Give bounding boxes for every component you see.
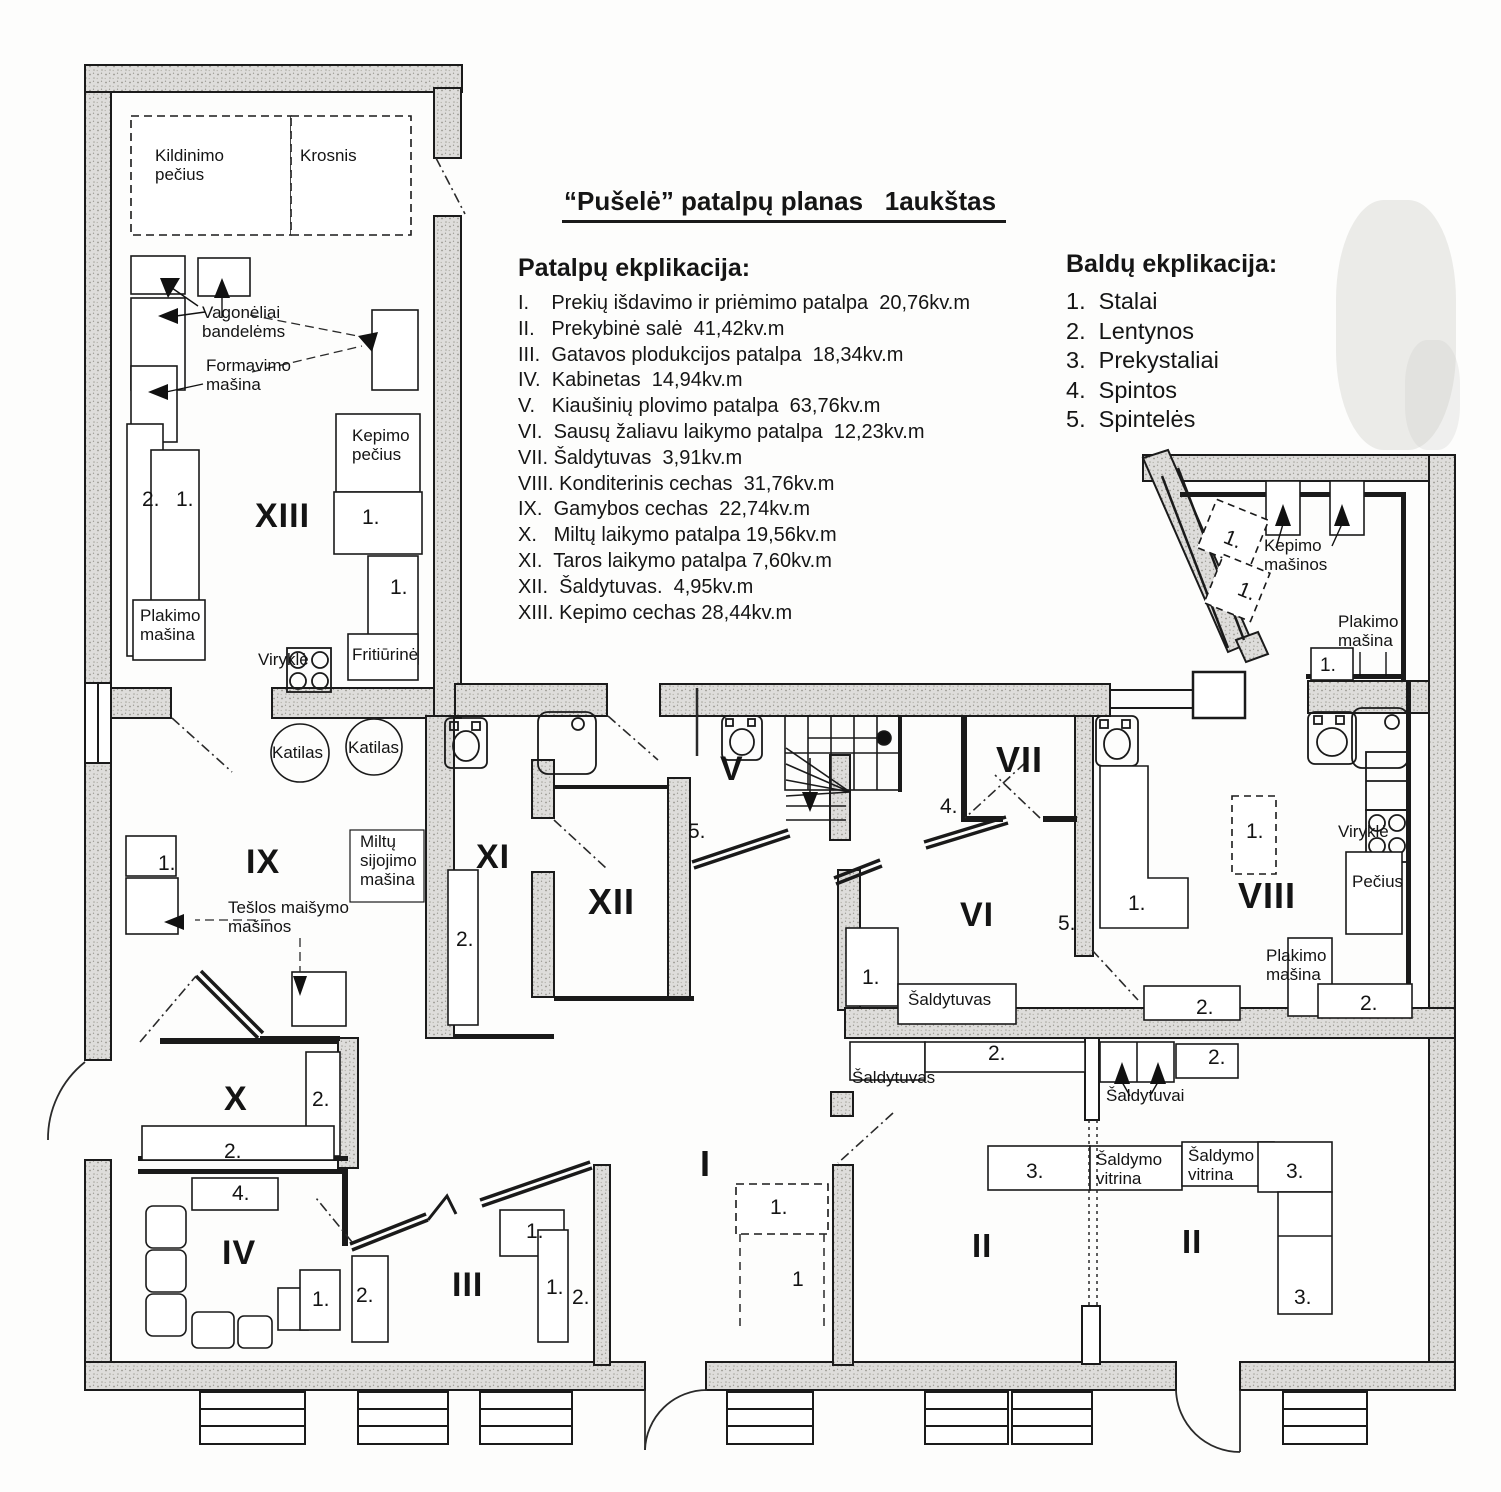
rooms-legend-item: V. Kiaušinių plovimo patalpa 63,76kv.m xyxy=(518,394,970,420)
rooms-legend-item: VIII. Konditerinis cechas 31,76kv.m xyxy=(518,472,970,498)
page-title: “Pušelė” patalpų planas 1aukštas xyxy=(562,186,1006,223)
furniture-number-label: 3. xyxy=(1286,1160,1304,1184)
lbl-saldytuvas-vi: Šaldytuvas xyxy=(908,990,991,1009)
wc-icon-3 xyxy=(1096,716,1138,766)
furniture-number-label: 2. xyxy=(456,928,474,952)
rooms-legend-item: II. Prekybinė salė 41,42kv.m xyxy=(518,317,970,343)
rooms-legend-item: XII. Šaldytuvas. 4,95kv.m xyxy=(518,575,970,601)
furniture-number-label: 2. xyxy=(142,488,160,512)
furniture-number-label: 2. xyxy=(1196,996,1214,1020)
lbl-kildinimo-pecius: Kildinimo pečius xyxy=(155,146,224,184)
rooms-legend-item: IV. Kabinetas 14,94kv.m xyxy=(518,368,970,394)
rooms-legend-heading: Patalpų ekplikacija: xyxy=(518,254,970,283)
furniture-number-label: 1. xyxy=(390,576,408,600)
rooms-legend-item: X. Miltų laikymo patalpa 19,56kv.m xyxy=(518,523,970,549)
lbl-saldymo-vitrina-1: Šaldymo vitrina xyxy=(1096,1150,1162,1188)
furniture-number-label: 2. xyxy=(1360,992,1378,1016)
lbl-formavimo-masina: Formavimo mašina xyxy=(206,356,291,394)
furniture-number-label: 2. xyxy=(1208,1046,1226,1070)
lbl-krosnis: Krosnis xyxy=(300,146,357,165)
furniture-number-label: 2. xyxy=(988,1042,1006,1066)
rooms-legend: Patalpų ekplikacija: I. Prekių išdavimo … xyxy=(518,254,970,626)
lbl-kepimo-pecius: Kepimo pečius xyxy=(352,426,410,464)
furniture-number-label: 3. xyxy=(1294,1286,1312,1310)
scan-artifact-2 xyxy=(1405,340,1460,450)
lbl-virykle-left: Viryklė xyxy=(258,650,309,669)
lbl-miltu-sijojimo: Miltų sijojimo mašina xyxy=(360,832,417,889)
furniture-legend-item: 1. Stalai xyxy=(1066,287,1277,317)
furniture-number-label: 1. xyxy=(526,1220,544,1244)
furniture-number-label: 1. xyxy=(1128,892,1146,916)
rooms-legend-item: VI. Sausų žaliavu laikymo patalpa 12,23k… xyxy=(518,420,970,446)
room-XIII: XIII xyxy=(255,497,310,535)
furniture-number-label: 1. xyxy=(1246,820,1264,844)
entry-landing xyxy=(1193,672,1245,718)
lbl-katilas-1: Katilas xyxy=(272,743,323,762)
furniture-number-label: 1. xyxy=(362,506,380,530)
lbl-saldymo-vitrina-2: Šaldymo vitrina xyxy=(1188,1146,1254,1184)
lbl-plakimo-masina-rt: Plakimo mašina xyxy=(1338,612,1398,650)
furniture-number-label: 2. xyxy=(224,1140,242,1164)
room-VIII: VIII xyxy=(1238,876,1296,916)
furniture-number-label: 1. xyxy=(770,1196,788,1220)
room-VII: VII xyxy=(996,740,1043,780)
furniture-number-label: 2. xyxy=(572,1286,590,1310)
room-I: I xyxy=(700,1144,711,1184)
furniture-number-label: 5. xyxy=(1058,912,1076,936)
room-X: X xyxy=(224,1080,248,1118)
furniture-number-label: 5. xyxy=(688,820,706,844)
furniture-legend-item: 5. Spintelės xyxy=(1066,405,1277,435)
lbl-katilas-2: Katilas xyxy=(348,738,399,757)
room-IV: IV xyxy=(222,1234,256,1272)
lbl-saldytuvas-ii: Šaldytuvas xyxy=(852,1068,935,1087)
rooms-legend-item: IX. Gamybos cechas 22,74kv.m xyxy=(518,497,970,523)
lbl-kepimo-masinos: Kepimo mašinos xyxy=(1264,536,1327,574)
furniture-legend-item: 4. Spintos xyxy=(1066,376,1277,406)
furniture-legend-item: 2. Lentynos xyxy=(1066,317,1277,347)
room-XI: XI xyxy=(476,838,510,876)
lbl-vagoneliai: Vagonėliai bandelėms xyxy=(202,303,285,341)
rooms-legend-item: VII. Šaldytuvas 3,91kv.m xyxy=(518,446,970,472)
furniture-number-label: 4. xyxy=(940,795,958,819)
rooms-legend-item: III. Gatavos plodukcijos patalpa 18,34kv… xyxy=(518,343,970,369)
room-II-left: II xyxy=(972,1228,992,1265)
room-VI: VI xyxy=(960,896,994,934)
rooms-legend-item: XIII. Kepimo cechas 28,44kv.m xyxy=(518,601,970,627)
furniture-number-label: 1. xyxy=(158,852,176,876)
furniture-number-label: 3. xyxy=(1026,1160,1044,1184)
lbl-teslos-maisymo: Tešlos maišymo mašinos xyxy=(228,898,349,936)
furniture-number-label: 1 xyxy=(792,1268,804,1292)
rooms-legend-item: I. Prekių išdavimo ir priėmimo patalpa 2… xyxy=(518,291,970,317)
furniture-number-label: 2. xyxy=(312,1088,330,1112)
room-II-right: II xyxy=(1182,1224,1202,1261)
furniture-legend-heading: Baldų ekplikacija: xyxy=(1066,250,1277,279)
furniture-number-label: 1. xyxy=(862,966,880,990)
room-III: III xyxy=(452,1266,483,1304)
lbl-virykle-right: Viryklė xyxy=(1338,822,1389,841)
furniture-number-label: 1. xyxy=(1320,655,1336,676)
lbl-plakimo-masina-rb: Plakimo mašina xyxy=(1266,946,1326,984)
washbasin-icon xyxy=(1308,712,1356,764)
lbl-pecius: Pečius xyxy=(1352,872,1403,891)
room-V: V xyxy=(720,750,744,788)
rooms-legend-item: XI. Taros laikymo patalpa 7,60kv.m xyxy=(518,549,970,575)
furniture-legend-item: 3. Prekystaliai xyxy=(1066,346,1277,376)
room-XII: XII xyxy=(588,882,635,922)
furniture-number-label: 1. xyxy=(176,488,194,512)
lbl-plakimo-masina-left: Plakimo mašina xyxy=(140,606,200,644)
furniture-number-label: 2. xyxy=(356,1284,374,1308)
room-IX: IX xyxy=(246,843,280,881)
furniture-number-label: 1. xyxy=(546,1276,564,1300)
sink-icon-2 xyxy=(1352,708,1408,768)
floor-plan-page: “Pušelė” patalpų planas 1aukštas Patalpų… xyxy=(0,0,1501,1492)
furniture-number-label: 4. xyxy=(232,1182,250,1206)
furniture-number-label: 1. xyxy=(312,1288,330,1312)
lbl-saldytuvai: Šaldytuvai xyxy=(1106,1086,1184,1105)
lbl-fritiurine: Fritiūrinė xyxy=(352,645,418,664)
furniture-legend: Baldų ekplikacija: 1. Stalai2. Lentynos3… xyxy=(1066,250,1277,435)
